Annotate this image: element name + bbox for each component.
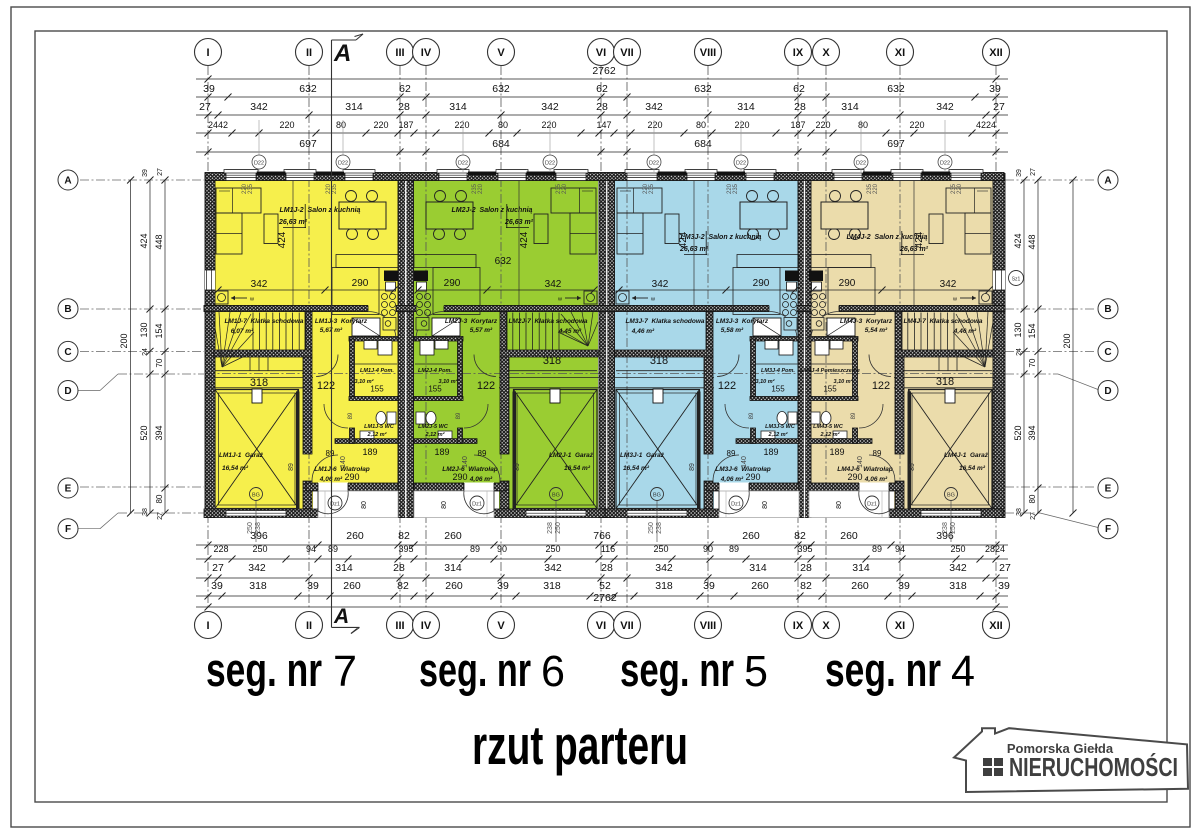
- svg-text:260: 260: [445, 580, 463, 592]
- svg-text:632: 632: [492, 83, 510, 95]
- svg-text:I: I: [206, 47, 209, 59]
- svg-text:B: B: [64, 304, 71, 315]
- svg-text:147: 147: [596, 120, 611, 130]
- svg-text:80: 80: [441, 501, 448, 509]
- svg-text:I: I: [206, 620, 209, 632]
- svg-text:342: 342: [949, 562, 967, 574]
- svg-text:39: 39: [497, 580, 509, 592]
- svg-text:2442: 2442: [208, 120, 228, 130]
- svg-text:314: 314: [335, 562, 353, 574]
- svg-text:16,54 m²: 16,54 m²: [623, 465, 650, 472]
- svg-text:LM2J-1 Garaż: LM2J-1 Garaż: [549, 452, 594, 459]
- svg-text:155: 155: [771, 385, 785, 394]
- svg-text:VII: VII: [620, 47, 633, 59]
- svg-text:28: 28: [794, 101, 806, 113]
- svg-text:LM2J-6 Wiatrołap: LM2J-6 Wiatrołap: [442, 466, 498, 473]
- svg-text:27: 27: [993, 101, 1005, 113]
- svg-text:BG: BG: [947, 493, 955, 499]
- svg-text:2762: 2762: [592, 65, 616, 77]
- svg-text:BG: BG: [653, 493, 661, 499]
- svg-text:39: 39: [142, 169, 149, 177]
- svg-text:4: 4: [951, 647, 975, 696]
- svg-text:94: 94: [895, 544, 905, 554]
- svg-text:LM4J-1 Garaż: LM4J-1 Garaż: [944, 452, 989, 459]
- svg-text:220: 220: [454, 120, 469, 130]
- svg-text:697: 697: [299, 138, 317, 150]
- svg-text:6,07 m²: 6,07 m²: [231, 328, 254, 335]
- svg-text:62: 62: [793, 83, 805, 95]
- svg-text:A: A: [1104, 176, 1111, 187]
- svg-text:314: 314: [444, 562, 462, 574]
- svg-text:89: 89: [348, 412, 354, 419]
- svg-text:290: 290: [847, 472, 862, 482]
- svg-text:BG: BG: [552, 493, 560, 499]
- svg-text:396: 396: [936, 530, 954, 542]
- svg-text:LM3J-1 Garaż: LM3J-1 Garaż: [620, 452, 665, 459]
- svg-text:II: II: [306, 620, 312, 632]
- svg-text:89: 89: [851, 412, 857, 419]
- svg-text:39: 39: [989, 83, 1001, 95]
- svg-text:684: 684: [694, 138, 712, 150]
- svg-text:122: 122: [718, 380, 736, 392]
- svg-text:27: 27: [157, 168, 164, 176]
- svg-text:342: 342: [541, 101, 559, 113]
- svg-text:318: 318: [655, 580, 673, 592]
- svg-text:187: 187: [790, 120, 805, 130]
- svg-text:89: 89: [328, 544, 338, 554]
- svg-text:424: 424: [914, 231, 925, 248]
- svg-text:424: 424: [139, 233, 149, 248]
- svg-text:140: 140: [340, 456, 347, 468]
- svg-text:X: X: [822, 620, 830, 632]
- svg-text:140: 140: [741, 456, 748, 468]
- svg-text:LM3J-4 Pom.: LM3J-4 Pom.: [761, 368, 795, 374]
- svg-text:70: 70: [155, 358, 164, 367]
- svg-text:62: 62: [399, 83, 411, 95]
- svg-text:394: 394: [154, 425, 164, 440]
- svg-text:396: 396: [250, 530, 268, 542]
- svg-text:290: 290: [839, 278, 856, 289]
- svg-text:189: 189: [763, 447, 778, 457]
- svg-text:Dz1: Dz1: [867, 502, 877, 508]
- svg-text:E: E: [1105, 484, 1112, 495]
- svg-text:39: 39: [203, 83, 215, 95]
- svg-text:A: A: [333, 605, 349, 628]
- svg-text:290: 290: [452, 472, 467, 482]
- svg-text:F: F: [65, 524, 71, 535]
- svg-text:342: 342: [655, 562, 673, 574]
- svg-text:424: 424: [1013, 233, 1023, 248]
- svg-text:LM4J-3 Korytarz: LM4J-3 Korytarz: [840, 318, 893, 325]
- svg-text:200: 200: [1062, 333, 1072, 348]
- svg-text:448: 448: [1027, 234, 1037, 249]
- svg-text:155: 155: [428, 385, 442, 394]
- svg-text:39: 39: [703, 580, 715, 592]
- svg-text:89: 89: [872, 544, 882, 554]
- svg-text:342: 342: [248, 562, 266, 574]
- svg-text:424: 424: [277, 231, 288, 248]
- svg-text:89: 89: [514, 463, 521, 471]
- svg-text:LM4J-7 Klatka schodowa: LM4J-7 Klatka schodowa: [903, 318, 982, 325]
- svg-text:XII: XII: [989, 620, 1002, 632]
- svg-text:80: 80: [858, 120, 868, 130]
- svg-text:228: 228: [213, 544, 228, 554]
- svg-text:5,58 m²: 5,58 m²: [721, 327, 744, 334]
- svg-text:LM2J-4 Pom.: LM2J-4 Pom.: [418, 368, 452, 374]
- svg-text:D22: D22: [545, 161, 555, 167]
- svg-text:IV: IV: [421, 47, 432, 59]
- svg-text:seg. nr: seg. nr: [825, 643, 941, 696]
- svg-text:24: 24: [1016, 348, 1023, 356]
- svg-text:342: 342: [936, 101, 954, 113]
- svg-text:235: 235: [472, 183, 478, 194]
- svg-text:IX: IX: [793, 620, 804, 632]
- svg-text:342: 342: [652, 279, 669, 290]
- svg-text:80: 80: [696, 120, 706, 130]
- svg-text:632: 632: [495, 256, 512, 267]
- svg-text:342: 342: [251, 279, 268, 290]
- svg-text:342: 342: [940, 279, 957, 290]
- svg-text:154: 154: [1027, 323, 1037, 338]
- svg-text:E: E: [65, 484, 72, 495]
- svg-text:187: 187: [398, 120, 413, 130]
- svg-text:116: 116: [601, 544, 615, 554]
- svg-text:seg. nr: seg. nr: [620, 643, 734, 696]
- svg-text:38: 38: [142, 508, 149, 516]
- svg-text:520: 520: [139, 425, 149, 440]
- svg-text:39: 39: [998, 580, 1010, 592]
- svg-text:BG: BG: [252, 493, 260, 499]
- svg-text:LM2J-3 Korytarz: LM2J-3 Korytarz: [445, 318, 498, 325]
- svg-text:III: III: [395, 47, 404, 59]
- svg-text:28: 28: [596, 101, 608, 113]
- svg-text:w: w: [650, 297, 655, 303]
- svg-text:LM3J-5 WC: LM3J-5 WC: [765, 424, 796, 430]
- svg-text:D22: D22: [736, 161, 746, 167]
- svg-text:28: 28: [601, 562, 613, 574]
- svg-text:260: 260: [742, 530, 760, 542]
- svg-text:89: 89: [456, 412, 462, 419]
- svg-text:LM3J-7 Klatka schodowa: LM3J-7 Klatka schodowa: [625, 318, 704, 325]
- svg-text:LM4J-4 Pomieszczenie: LM4J-4 Pomieszczenie: [800, 368, 860, 374]
- svg-text:189: 189: [434, 447, 449, 457]
- svg-text:39: 39: [307, 580, 319, 592]
- svg-text:16,54 m²: 16,54 m²: [222, 465, 249, 472]
- svg-text:89: 89: [478, 449, 487, 458]
- svg-text:D22: D22: [458, 161, 468, 167]
- svg-text:290: 290: [745, 472, 760, 482]
- svg-text:220: 220: [478, 183, 484, 194]
- svg-text:122: 122: [872, 380, 890, 392]
- svg-text:766: 766: [593, 530, 611, 542]
- svg-text:155: 155: [823, 385, 837, 394]
- svg-text:395: 395: [797, 544, 812, 554]
- svg-text:94: 94: [306, 544, 316, 554]
- svg-text:260: 260: [444, 530, 462, 542]
- svg-text:VII: VII: [620, 620, 633, 632]
- svg-text:220: 220: [373, 120, 388, 130]
- svg-text:4,06 m²: 4,06 m²: [720, 476, 744, 483]
- svg-text:90: 90: [703, 544, 713, 554]
- svg-text:220: 220: [815, 120, 830, 130]
- svg-text:260: 260: [346, 530, 364, 542]
- svg-text:318: 318: [543, 580, 561, 592]
- svg-text:16,54 m²: 16,54 m²: [959, 465, 986, 472]
- svg-text:LM4J-6 Wiatrołap: LM4J-6 Wiatrołap: [837, 466, 893, 473]
- svg-text:VI: VI: [596, 47, 606, 59]
- svg-text:290: 290: [444, 278, 461, 289]
- svg-text:LM1J-2 Salon z kuchnią: LM1J-2 Salon z kuchnią: [280, 207, 361, 214]
- svg-text:235: 235: [556, 183, 562, 194]
- svg-text:2,12 m²: 2,12 m²: [768, 431, 788, 438]
- svg-text:424: 424: [519, 231, 530, 248]
- svg-text:260: 260: [851, 580, 869, 592]
- svg-text:2,12 m²: 2,12 m²: [367, 431, 387, 438]
- svg-text:LM2J-7 Klatka schodowa: LM2J-7 Klatka schodowa: [508, 318, 587, 325]
- svg-text:260: 260: [840, 530, 858, 542]
- svg-text:B: B: [1104, 304, 1111, 315]
- svg-text:VI: VI: [596, 620, 606, 632]
- svg-text:90: 90: [497, 544, 507, 554]
- svg-text:89: 89: [326, 449, 335, 458]
- svg-text:318: 318: [249, 580, 267, 592]
- svg-text:5,54 m²: 5,54 m²: [865, 327, 888, 334]
- svg-text:2,12 m²: 2,12 m²: [820, 431, 840, 438]
- svg-text:2824: 2824: [985, 544, 1005, 554]
- svg-text:D22: D22: [940, 161, 950, 167]
- svg-text:39: 39: [211, 580, 223, 592]
- svg-text:Sz1: Sz1: [1012, 277, 1021, 283]
- svg-text:290: 290: [753, 278, 770, 289]
- svg-text:80: 80: [361, 501, 368, 509]
- svg-text:D: D: [1104, 386, 1111, 397]
- svg-text:seg. nr: seg. nr: [419, 643, 531, 696]
- svg-text:82: 82: [794, 530, 806, 542]
- svg-text:VIII: VIII: [700, 47, 717, 59]
- svg-text:seg. nr: seg. nr: [206, 643, 322, 696]
- svg-text:39: 39: [1016, 169, 1023, 177]
- svg-text:82: 82: [398, 530, 410, 542]
- svg-text:342: 342: [250, 101, 268, 113]
- svg-text:89: 89: [689, 463, 696, 471]
- svg-text:140: 140: [857, 456, 864, 468]
- svg-text:260: 260: [751, 580, 769, 592]
- svg-text:290: 290: [344, 472, 359, 482]
- svg-text:250: 250: [950, 544, 965, 554]
- svg-text:318: 318: [650, 355, 668, 367]
- svg-text:52: 52: [599, 580, 611, 592]
- svg-text:27: 27: [157, 512, 164, 520]
- svg-text:314: 314: [345, 101, 363, 113]
- svg-text:D22: D22: [254, 161, 264, 167]
- svg-text:235: 235: [649, 183, 655, 194]
- svg-text:24: 24: [142, 348, 149, 356]
- svg-text:89: 89: [470, 544, 480, 554]
- svg-text:235: 235: [867, 183, 873, 194]
- svg-text:4,06 m²: 4,06 m²: [864, 476, 888, 483]
- svg-text:5: 5: [744, 647, 768, 696]
- svg-text:38: 38: [1016, 508, 1023, 516]
- svg-text:XI: XI: [895, 47, 905, 59]
- svg-text:Dz1: Dz1: [472, 502, 482, 508]
- svg-text:395: 395: [398, 544, 413, 554]
- svg-text:89: 89: [909, 463, 916, 471]
- svg-text:80: 80: [498, 120, 508, 130]
- svg-text:318: 318: [250, 377, 268, 389]
- svg-text:4,46 m²: 4,46 m²: [631, 328, 655, 335]
- svg-text:A: A: [64, 176, 71, 187]
- svg-text:XI: XI: [895, 620, 905, 632]
- svg-text:4,06 m²: 4,06 m²: [469, 476, 493, 483]
- svg-text:89: 89: [727, 449, 736, 458]
- svg-text:314: 314: [841, 101, 859, 113]
- svg-text:89: 89: [749, 412, 755, 419]
- svg-text:250: 250: [545, 544, 560, 554]
- svg-text:189: 189: [829, 447, 844, 457]
- svg-text:D22: D22: [856, 161, 866, 167]
- svg-text:250: 250: [555, 522, 562, 534]
- svg-text:LM2J-5 WC: LM2J-5 WC: [418, 424, 449, 430]
- svg-text:27: 27: [212, 562, 224, 574]
- svg-text:424: 424: [678, 231, 689, 248]
- svg-text:27: 27: [1030, 168, 1037, 176]
- svg-text:4224: 4224: [976, 120, 996, 130]
- svg-text:220: 220: [909, 120, 924, 130]
- svg-text:220: 220: [647, 120, 662, 130]
- svg-text:Dz1: Dz1: [731, 502, 741, 508]
- svg-text:130: 130: [1013, 322, 1023, 337]
- svg-text:LM1J-5 WC: LM1J-5 WC: [364, 424, 395, 430]
- svg-text:314: 314: [737, 101, 755, 113]
- svg-text:X: X: [822, 47, 830, 59]
- svg-text:LM1J-1 Garaż: LM1J-1 Garaż: [219, 452, 264, 459]
- svg-text:39: 39: [898, 580, 910, 592]
- svg-text:C: C: [1104, 347, 1111, 358]
- svg-text:16,54 m²: 16,54 m²: [564, 465, 591, 472]
- svg-text:250: 250: [252, 544, 267, 554]
- svg-text:w: w: [557, 297, 562, 303]
- svg-text:V: V: [497, 620, 505, 632]
- svg-text:28: 28: [398, 101, 410, 113]
- svg-text:238: 238: [547, 522, 554, 534]
- svg-text:130: 130: [139, 322, 149, 337]
- svg-text:80: 80: [836, 501, 843, 509]
- svg-text:A: A: [333, 40, 351, 67]
- svg-text:27: 27: [199, 101, 211, 113]
- svg-text:82: 82: [397, 580, 409, 592]
- svg-text:220: 220: [873, 183, 879, 194]
- svg-text:D: D: [64, 386, 71, 397]
- svg-text:VIII: VIII: [700, 620, 717, 632]
- svg-text:LM1J-7 Klatka schodowa: LM1J-7 Klatka schodowa: [224, 318, 303, 325]
- svg-text:LM1J-4 Pom.: LM1J-4 Pom.: [360, 368, 394, 374]
- svg-text:394: 394: [1027, 425, 1037, 440]
- svg-text:2,12 m²: 2,12 m²: [425, 431, 445, 438]
- svg-text:27: 27: [1030, 512, 1037, 520]
- svg-text:LM4J-5 WC: LM4J-5 WC: [813, 424, 844, 430]
- svg-text:342: 342: [544, 562, 562, 574]
- svg-text:F: F: [1105, 524, 1111, 535]
- svg-text:80: 80: [155, 494, 164, 503]
- svg-text:w: w: [952, 297, 957, 303]
- svg-text:520: 520: [1013, 425, 1023, 440]
- svg-text:2762: 2762: [593, 592, 617, 604]
- svg-text:IV: IV: [421, 620, 432, 632]
- svg-text:235: 235: [951, 183, 957, 194]
- svg-text:5,57 m²: 5,57 m²: [470, 327, 493, 334]
- svg-text:632: 632: [694, 83, 712, 95]
- svg-text:89: 89: [873, 449, 882, 458]
- svg-text:IX: IX: [793, 47, 804, 59]
- svg-text:89: 89: [288, 463, 295, 471]
- svg-text:200: 200: [119, 333, 129, 348]
- svg-text:w: w: [249, 297, 254, 303]
- svg-text:7: 7: [333, 647, 357, 696]
- svg-text:LM2J-2 Salon z kuchnią: LM2J-2 Salon z kuchnią: [452, 207, 533, 214]
- svg-text:220: 220: [541, 120, 556, 130]
- svg-text:122: 122: [317, 380, 335, 392]
- svg-text:80: 80: [762, 501, 769, 509]
- svg-text:4,06 m²: 4,06 m²: [319, 476, 343, 483]
- svg-text:220: 220: [734, 120, 749, 130]
- svg-text:318: 318: [936, 376, 954, 388]
- svg-text:D22: D22: [649, 161, 659, 167]
- svg-text:140: 140: [462, 456, 469, 468]
- svg-text:318: 318: [543, 355, 561, 367]
- svg-text:235: 235: [248, 183, 254, 194]
- svg-text:155: 155: [370, 385, 384, 394]
- svg-text:632: 632: [887, 83, 905, 95]
- svg-text:154: 154: [154, 323, 164, 338]
- svg-text:NIERUCHOMOŚCI: NIERUCHOMOŚCI: [1009, 752, 1178, 782]
- svg-text:684: 684: [492, 138, 510, 150]
- svg-text:235: 235: [332, 183, 338, 194]
- svg-text:189: 189: [362, 447, 377, 457]
- svg-text:80: 80: [336, 120, 346, 130]
- svg-text:28: 28: [800, 562, 812, 574]
- svg-text:314: 314: [749, 562, 767, 574]
- svg-text:632: 632: [299, 83, 317, 95]
- svg-text:LM3J-2 Salon z kuchnią: LM3J-2 Salon z kuchnią: [681, 234, 762, 241]
- svg-text:82: 82: [800, 580, 812, 592]
- svg-text:62: 62: [596, 83, 608, 95]
- svg-text:238: 238: [656, 522, 663, 534]
- svg-text:220: 220: [279, 120, 294, 130]
- svg-text:342: 342: [545, 279, 562, 290]
- svg-text:220: 220: [562, 183, 568, 194]
- svg-text:D22: D22: [338, 161, 348, 167]
- svg-text:235: 235: [733, 183, 739, 194]
- svg-text:220: 220: [957, 183, 963, 194]
- svg-text:318: 318: [949, 580, 967, 592]
- svg-text:4,46 m²: 4,46 m²: [953, 328, 977, 335]
- svg-text:260: 260: [343, 580, 361, 592]
- svg-text:70: 70: [1028, 358, 1037, 367]
- svg-text:6: 6: [541, 647, 565, 696]
- svg-text:LM3J-3 Korytarz: LM3J-3 Korytarz: [716, 318, 769, 325]
- svg-text:C: C: [64, 347, 71, 358]
- svg-text:II: II: [306, 47, 312, 59]
- svg-text:122: 122: [477, 380, 495, 392]
- svg-text:4,45 m²: 4,45 m²: [558, 328, 582, 335]
- svg-text:XII: XII: [989, 47, 1002, 59]
- svg-text:rzut parteru: rzut parteru: [472, 714, 688, 776]
- svg-text:290: 290: [352, 278, 369, 289]
- svg-text:80: 80: [1028, 494, 1037, 503]
- svg-text:314: 314: [852, 562, 870, 574]
- svg-text:V: V: [497, 47, 505, 59]
- svg-text:III: III: [395, 620, 404, 632]
